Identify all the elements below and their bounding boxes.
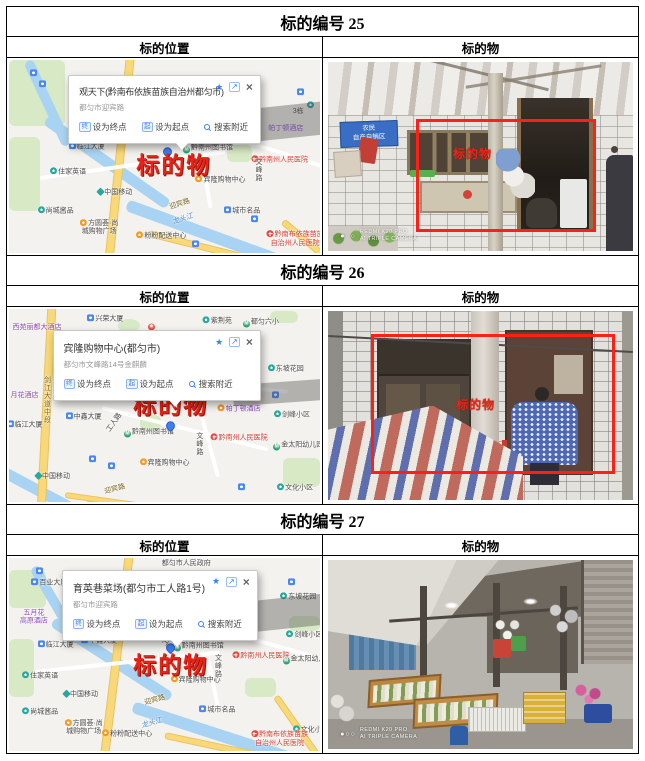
column-header-object: 标的物 xyxy=(323,535,639,556)
set-destination-label: 设为终点 xyxy=(86,618,120,630)
favorite-star-icon[interactable]: ★ xyxy=(212,577,220,586)
shop-icon xyxy=(80,219,87,226)
column-header-object: 标的物 xyxy=(323,37,639,58)
set-destination-link[interactable]: 终设为终点 xyxy=(64,378,112,390)
column-header-location: 标的位置 xyxy=(7,286,323,307)
metro2-icon: M xyxy=(283,658,290,665)
subject-table: 标的编号 25 标的位置 标的物 xyxy=(6,6,639,754)
set-origin-link[interactable]: 起设为起点 xyxy=(126,378,174,390)
target-overlay-label: 标的物 xyxy=(456,396,495,413)
map-label: 文化小区 xyxy=(277,484,313,493)
search-icon xyxy=(189,380,197,388)
map-label: 迎宾路 xyxy=(144,694,166,708)
green-goods xyxy=(511,636,526,651)
share-icon[interactable]: ↗ xyxy=(229,82,240,92)
map-label: 文峰路 xyxy=(195,432,203,456)
set-origin-label: 设为起点 xyxy=(140,378,174,390)
map-canvas[interactable]: ★ ↗ × 观天下(黔南布依族苗族自治州都匀市) 都匀市迎宾路 终设为终点 起设… xyxy=(9,60,320,253)
map-label: 黔南州人民医院 xyxy=(232,652,289,661)
pink-bags xyxy=(569,681,609,704)
map-label: 剑峰小区 xyxy=(286,630,320,639)
pin-icon xyxy=(164,419,177,432)
watermark-line1: REDMI K20 PRO xyxy=(360,727,408,733)
favorite-star-icon[interactable]: ★ xyxy=(215,338,223,347)
map-canvas[interactable]: ★ ↗ × 宾隆购物中心(都匀市) 都匀市文峰路14号金麒麟 终设为终点 起设为… xyxy=(9,309,320,502)
stall-light xyxy=(523,598,538,606)
blue-barrel xyxy=(450,726,468,745)
map-poi-icon xyxy=(288,578,296,587)
map-popup: ★ ↗ × 宾隆购物中心(都匀市) 都匀市文峰路14号金麒麟 终设为终点 起设为… xyxy=(53,330,261,401)
section-header: 标的编号 27 xyxy=(7,505,639,535)
close-icon[interactable]: × xyxy=(246,336,253,348)
camera-watermark: ●○○ REDMI K20 PROAI TRIPLE CAMERA xyxy=(340,229,417,243)
origin-icon: 起 xyxy=(126,379,138,389)
metro-icon xyxy=(274,410,281,417)
yellow-crates xyxy=(523,692,566,724)
set-destination-link[interactable]: 终设为终点 xyxy=(73,618,121,630)
map-label: 中国移动 xyxy=(63,691,98,699)
search-nearby-label: 搜索附近 xyxy=(208,618,242,630)
map-label: 帕丁顿酒店 xyxy=(218,405,261,414)
section-27: 标的编号 27 标的位置 标的物 xyxy=(7,505,639,754)
map-label: 临江大厦 xyxy=(9,420,43,429)
white-sacks xyxy=(328,692,359,722)
bus-icon xyxy=(9,420,14,427)
map-poi-icon xyxy=(166,421,176,432)
metro2-icon: M xyxy=(124,430,131,437)
park-area xyxy=(9,137,40,210)
set-destination-label: 设为终点 xyxy=(77,378,111,390)
map-poi-icon xyxy=(251,215,259,224)
map-label: 方圆荟·尚城购物广场 xyxy=(80,219,118,237)
shop-icon xyxy=(136,231,143,238)
bus-icon xyxy=(297,88,304,95)
map-canvas[interactable]: ★ ↗ × 育英巷菜场(都匀市工人路1号) 都匀市迎宾路 终设为终点 起设为起点… xyxy=(9,558,320,751)
road-shape xyxy=(65,492,235,502)
search-icon xyxy=(198,620,206,628)
search-nearby-link[interactable]: 搜索附近 xyxy=(198,618,242,630)
watermark-dots: ●○○ xyxy=(340,233,356,240)
mob-icon xyxy=(96,188,104,196)
set-origin-label: 设为起点 xyxy=(155,121,189,133)
target-outline-box xyxy=(416,119,596,232)
popup-pointer xyxy=(171,640,183,647)
metro2-icon: M xyxy=(243,320,250,327)
stall-light xyxy=(444,602,459,610)
set-origin-label: 设为起点 xyxy=(149,618,183,630)
search-nearby-label: 搜索附近 xyxy=(214,121,248,133)
bystander xyxy=(606,155,633,251)
map-label: 临江大厦 xyxy=(38,640,74,649)
photo-subject: 农民自产自销区 标的物 ●○○ xyxy=(328,62,633,251)
map-poi-icon xyxy=(39,80,47,89)
map-label: 住家英语 xyxy=(50,167,86,176)
set-destination-label: 设为终点 xyxy=(93,121,127,133)
map-label: 剑江大道中段 xyxy=(42,376,50,424)
popup-pointer xyxy=(176,143,188,150)
hosp-icon xyxy=(211,434,218,441)
map-target-label: 标的物 xyxy=(133,652,208,680)
map-label: 尚城酱品 xyxy=(38,206,74,215)
map-label: 中鑫大厦 xyxy=(66,412,102,421)
map-label: M都匀六小 xyxy=(243,318,279,327)
hosp-icon xyxy=(267,231,274,238)
sign-line1: 农民 xyxy=(362,124,375,131)
map-poi-icon xyxy=(238,484,246,493)
bus-icon xyxy=(192,241,199,248)
map-label: 工人路 xyxy=(105,412,124,434)
map-label: 都匀市人民政府 xyxy=(162,560,211,568)
map-label: M金太阳幼儿园 xyxy=(273,442,320,451)
map-label: 黔南州人民医院 xyxy=(211,434,268,443)
shop-icon xyxy=(218,405,225,412)
map-label: 城市名品 xyxy=(224,206,260,215)
metro-icon xyxy=(286,630,293,637)
column-header-location: 标的位置 xyxy=(7,535,323,556)
roller-shutter xyxy=(581,560,633,664)
metro-icon xyxy=(268,364,275,371)
hosp-icon xyxy=(232,652,239,659)
map-popup: ★ ↗ × 育英巷菜场(都匀市工人路1号) 都匀市迎宾路 终设为终点 起设为起点… xyxy=(62,570,258,641)
map-target-label: 标的物 xyxy=(136,152,211,180)
bus-icon xyxy=(39,80,46,87)
blue-goods xyxy=(584,704,611,723)
map-poi-icon xyxy=(30,69,38,78)
poi-address: 都匀市迎宾路 xyxy=(79,102,250,113)
column-header-location: 标的位置 xyxy=(7,37,323,58)
popup-pointer xyxy=(169,400,181,407)
park-area xyxy=(9,639,34,697)
map-label: 住家英语 xyxy=(22,671,58,680)
bus-icon xyxy=(36,567,43,574)
park-area xyxy=(283,458,320,487)
shop-icon xyxy=(140,459,147,466)
bus-icon xyxy=(238,484,245,491)
metro2-icon: M xyxy=(273,444,280,451)
metro-icon xyxy=(203,316,210,323)
photo-subject: ●○○ REDMI K20 PROAI TRIPLE CAMERA xyxy=(328,560,633,749)
set-origin-link[interactable]: 起设为起点 xyxy=(135,618,183,630)
map-label: 城市名品 xyxy=(199,706,235,715)
bus-icon xyxy=(89,455,96,462)
search-nearby-label: 搜索附近 xyxy=(199,378,233,390)
bus-icon xyxy=(66,412,73,419)
close-icon[interactable]: × xyxy=(246,81,253,93)
metro-icon xyxy=(22,671,29,678)
map-poi-icon xyxy=(108,463,116,472)
shop-icon xyxy=(102,729,109,736)
map-label: 剑峰小区 xyxy=(274,410,310,419)
metro-icon xyxy=(22,708,29,715)
target-overlay-label: 标的物 xyxy=(453,145,492,162)
bus-icon xyxy=(199,706,206,713)
silver-bags xyxy=(542,598,588,640)
map-label: 紫荆苑 xyxy=(203,316,232,325)
metro-icon xyxy=(50,167,57,174)
document-page: 标的编号 25 标的位置 标的物 xyxy=(0,0,645,761)
park-area xyxy=(245,678,276,697)
map-label: 黔南布依族苗族自治州人民医院 xyxy=(251,731,308,749)
camera-watermark: ●○○ REDMI K20 PROAI TRIPLE CAMERA xyxy=(340,727,417,741)
section-header: 标的编号 26 xyxy=(7,256,639,286)
search-nearby-link[interactable]: 搜索附近 xyxy=(204,121,248,133)
map-poi-icon xyxy=(89,455,97,464)
shop-icon xyxy=(64,719,71,726)
watermark-line2: AI TRIPLE CAMERA xyxy=(360,734,417,740)
map-label: 粉粉配送中心 xyxy=(136,231,186,240)
map-label: 兴荣大厦 xyxy=(87,314,123,323)
photo-subject: 标的物 xyxy=(328,311,633,500)
map-label: 中国移动 xyxy=(97,189,132,197)
metro-icon xyxy=(38,206,45,213)
white-basket xyxy=(468,707,526,732)
column-header-object: 标的物 xyxy=(323,286,639,307)
set-origin-link[interactable]: 起设为起点 xyxy=(142,121,190,133)
set-destination-link[interactable]: 终设为终点 xyxy=(79,121,127,133)
map-label: 迎宾路 xyxy=(104,484,126,497)
bus-icon xyxy=(87,314,94,321)
section-25: 标的编号 25 标的位置 标的物 xyxy=(7,7,639,256)
share-icon[interactable]: ↗ xyxy=(226,577,237,587)
share-icon[interactable]: ↗ xyxy=(229,337,240,347)
destination-icon: 终 xyxy=(73,619,85,629)
metro-icon xyxy=(277,484,284,491)
map-popup: ★ ↗ × 观天下(黔南布依族苗族自治州都匀市) 都匀市迎宾路 终设为终点 起设… xyxy=(68,75,261,144)
map-label: 宾隆购物中心 xyxy=(140,459,190,468)
map-label: 中国移动 xyxy=(35,473,70,481)
bus-icon xyxy=(288,578,295,585)
bus-icon xyxy=(251,215,258,222)
bus-icon xyxy=(108,463,115,470)
favorite-star-icon[interactable]: ★ xyxy=(215,83,223,92)
bus-icon xyxy=(224,206,231,213)
origin-icon: 起 xyxy=(135,619,147,629)
mob-icon xyxy=(62,690,70,698)
cardboard xyxy=(333,150,362,178)
map-poi-icon xyxy=(192,241,200,250)
red-goods xyxy=(493,639,511,658)
map-label: 方圆荟·尚城购物广场 xyxy=(64,719,102,737)
map-label: 黔南布依族苗族自治州人民医院 xyxy=(267,231,320,249)
map-poi-icon xyxy=(36,567,44,576)
map-label: 五月花高原酒店 xyxy=(20,609,48,626)
section-header: 标的编号 25 xyxy=(7,7,639,37)
map-label: 文峰路 xyxy=(254,158,262,182)
watermark-line1: REDMI K20 PRO xyxy=(360,229,408,235)
watermark-dots: ●○○ xyxy=(340,731,356,738)
hosp-icon xyxy=(251,731,258,738)
watermark-line2: AI TRIPLE CAMERA xyxy=(360,236,417,242)
map-label: M金太阳幼儿园 xyxy=(283,656,320,665)
section-26: 标的编号 26 标的位置 标的物 xyxy=(7,256,639,505)
map-label: 迎宾路 xyxy=(169,198,192,212)
bus-icon xyxy=(31,578,38,585)
destination-icon: 终 xyxy=(64,379,76,389)
poi-address: 都匀市迎宾路 xyxy=(73,599,247,610)
destination-icon: 终 xyxy=(79,122,91,132)
mob-icon xyxy=(34,471,42,479)
bus-icon xyxy=(30,69,37,76)
map-label: 月花酒店 xyxy=(11,392,39,400)
map-label: 尚城酱品 xyxy=(22,708,58,717)
origin-icon: 起 xyxy=(142,122,154,132)
map-label: 东坡花园 xyxy=(268,364,304,373)
map-poi-icon xyxy=(297,88,305,97)
search-icon xyxy=(204,123,212,131)
poi-address: 都匀市文峰路14号金麒麟 xyxy=(64,359,250,370)
bus-icon xyxy=(38,640,45,647)
search-nearby-link[interactable]: 搜索附近 xyxy=(189,378,233,390)
wall-column xyxy=(622,311,633,500)
close-icon[interactable]: × xyxy=(243,576,250,588)
